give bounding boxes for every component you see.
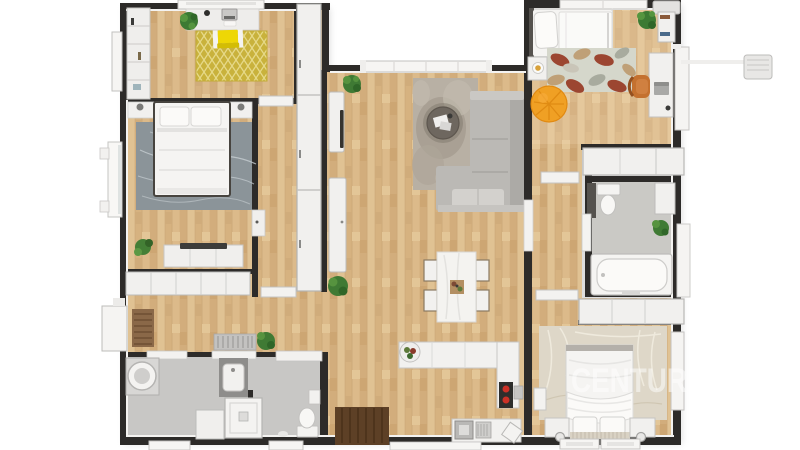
svg-text:CENTUR: CENTUR bbox=[571, 362, 687, 400]
